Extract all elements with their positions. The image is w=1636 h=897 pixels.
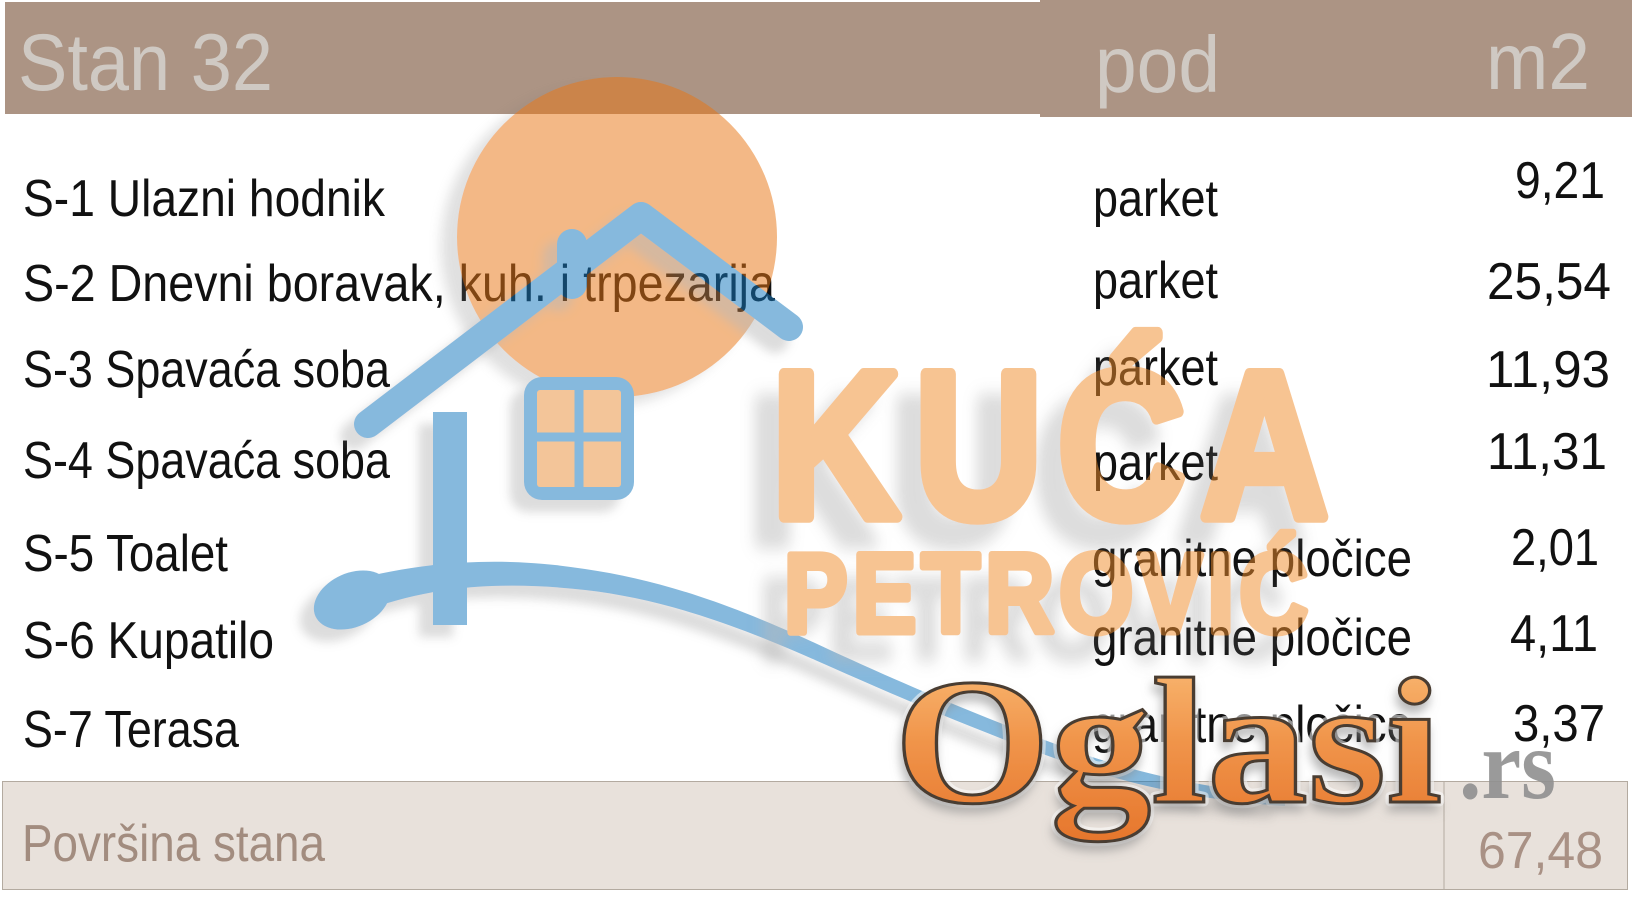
svg-text:S-7 Terasa: S-7 Terasa	[23, 701, 239, 759]
svg-text:S-6 Kupatilo: S-6 Kupatilo	[23, 612, 274, 670]
svg-text:Stan 32: Stan 32	[18, 18, 273, 108]
svg-text:Površina stana: Površina stana	[22, 815, 325, 873]
svg-text:Oglasi: Oglasi	[894, 642, 1442, 842]
svg-text:KUĆA: KUĆA	[772, 329, 1328, 561]
svg-text:9,21: 9,21	[1515, 152, 1605, 210]
svg-text:S-3 Spavaća soba: S-3 Spavaća soba	[23, 341, 390, 399]
svg-text:.rs: .rs	[1459, 709, 1556, 820]
svg-text:parket: parket	[1093, 170, 1218, 228]
svg-text:S-1 Ulazni hodnik: S-1 Ulazni hodnik	[23, 170, 386, 228]
svg-text:67,48: 67,48	[1478, 822, 1603, 880]
svg-text:11,31: 11,31	[1487, 423, 1607, 481]
svg-text:2,01: 2,01	[1511, 519, 1599, 577]
svg-text:m2: m2	[1486, 17, 1590, 106]
svg-text:S-5 Toalet: S-5 Toalet	[23, 525, 228, 583]
svg-text:25,54: 25,54	[1487, 253, 1611, 311]
svg-text:parket: parket	[1093, 252, 1218, 310]
svg-text:11,93: 11,93	[1486, 341, 1610, 399]
svg-text:4,11: 4,11	[1510, 605, 1598, 663]
svg-text:pod: pod	[1095, 20, 1220, 109]
svg-text:PETROVIĆ: PETROVIĆ	[784, 532, 1308, 657]
svg-text:S-4 Spavaća soba: S-4 Spavaća soba	[23, 432, 390, 490]
